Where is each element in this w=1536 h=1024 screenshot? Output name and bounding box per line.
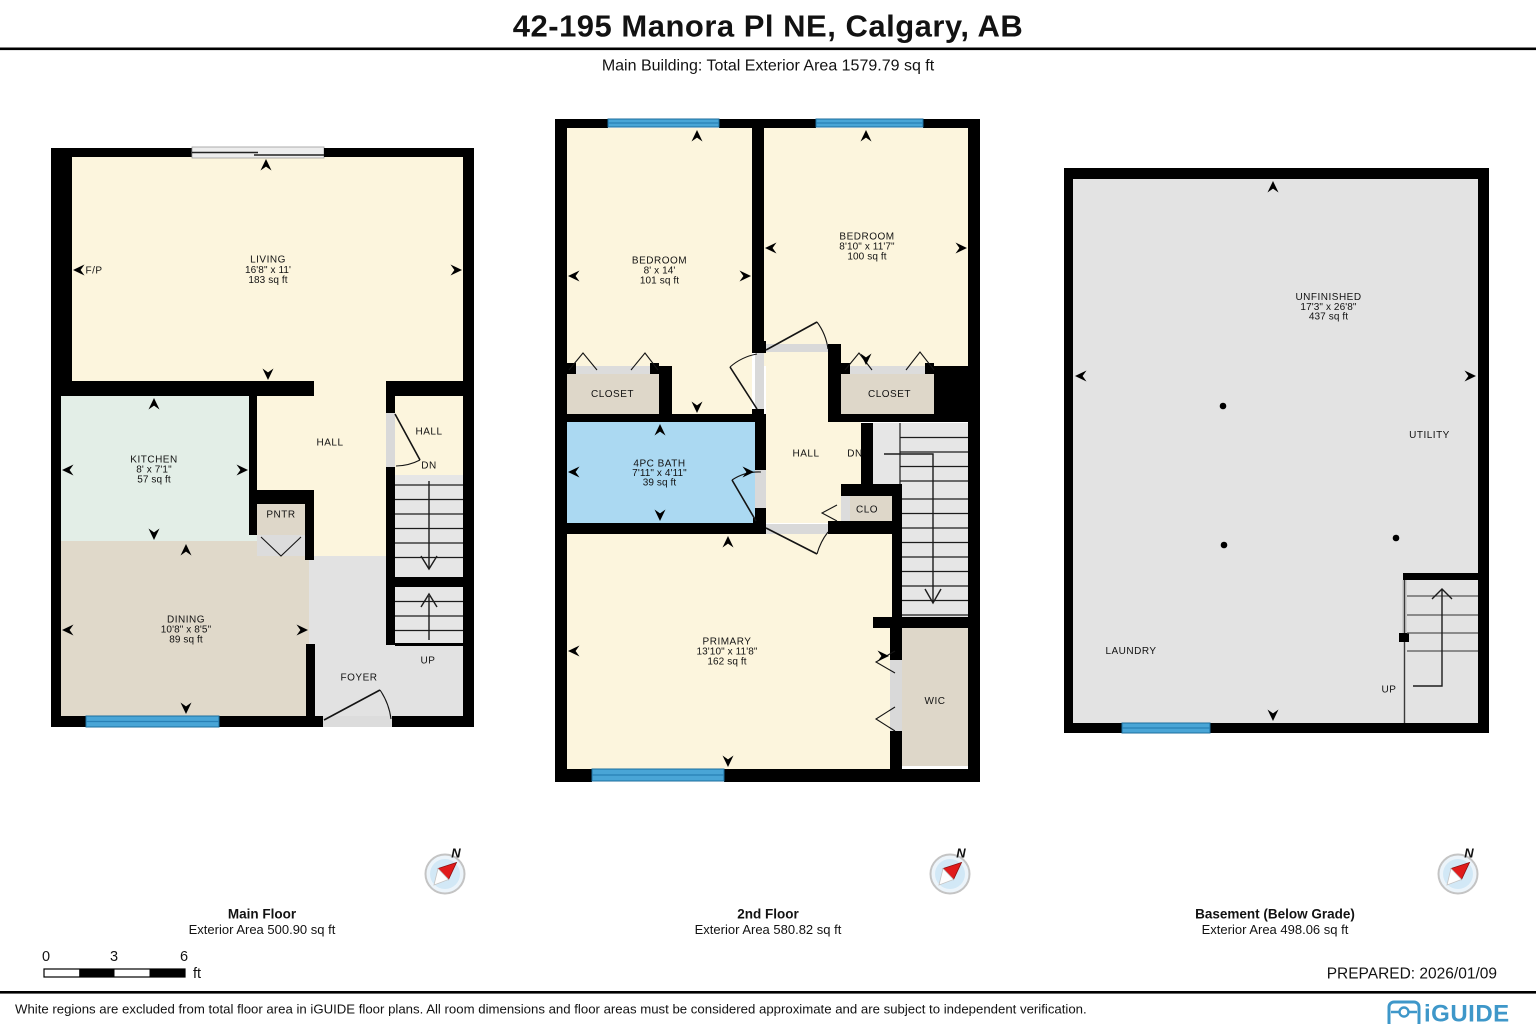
svg-text:DN: DN bbox=[847, 449, 862, 460]
svg-text:183 sq ft: 183 sq ft bbox=[248, 275, 287, 286]
svg-text:100 sq ft: 100 sq ft bbox=[847, 252, 886, 263]
svg-text:HALL: HALL bbox=[792, 449, 819, 460]
svg-text:57 sq ft: 57 sq ft bbox=[137, 475, 171, 486]
svg-text:iGUIDE: iGUIDE bbox=[1424, 1001, 1510, 1024]
svg-text:101 sq ft: 101 sq ft bbox=[640, 276, 679, 287]
svg-text:ft: ft bbox=[193, 966, 201, 982]
svg-text:WIC: WIC bbox=[925, 696, 946, 707]
svg-text:LAUNDRY: LAUNDRY bbox=[1105, 646, 1156, 657]
svg-text:PREPARED: 2026/01/09: PREPARED: 2026/01/09 bbox=[1327, 966, 1497, 983]
svg-text:N: N bbox=[1464, 846, 1474, 861]
svg-text:Exterior Area 580.82 sq ft: Exterior Area 580.82 sq ft bbox=[695, 922, 842, 937]
svg-text:437 sq ft: 437 sq ft bbox=[1309, 312, 1348, 323]
svg-text:Basement (Below Grade): Basement (Below Grade) bbox=[1195, 907, 1355, 922]
svg-text:0: 0 bbox=[42, 949, 50, 965]
svg-text:F/P: F/P bbox=[85, 266, 102, 277]
svg-text:N: N bbox=[956, 846, 966, 861]
svg-text:LIVING: LIVING bbox=[250, 255, 286, 266]
svg-text:Exterior Area 500.90 sq ft: Exterior Area 500.90 sq ft bbox=[189, 922, 336, 937]
svg-text:39 sq ft: 39 sq ft bbox=[643, 478, 677, 489]
svg-text:162 sq ft: 162 sq ft bbox=[707, 657, 746, 668]
svg-text:2nd Floor: 2nd Floor bbox=[737, 907, 799, 922]
svg-text:UP: UP bbox=[421, 656, 436, 667]
svg-text:3: 3 bbox=[110, 949, 118, 965]
svg-text:Main Building: Total Exterior: Main Building: Total Exterior Area 1579.… bbox=[602, 58, 935, 75]
svg-text:89 sq ft: 89 sq ft bbox=[169, 635, 203, 646]
svg-text:White regions are excluded fro: White regions are excluded from total fl… bbox=[15, 1002, 1087, 1017]
svg-text:PNTR: PNTR bbox=[266, 510, 295, 521]
svg-text:42-195 Manora Pl NE, Calgary,: 42-195 Manora Pl NE, Calgary, AB bbox=[513, 9, 1023, 44]
svg-text:UP: UP bbox=[1382, 685, 1397, 696]
svg-text:HALL: HALL bbox=[316, 438, 343, 449]
svg-text:HALL: HALL bbox=[415, 427, 442, 438]
svg-text:N: N bbox=[451, 846, 461, 861]
svg-text:Exterior Area 498.06 sq ft: Exterior Area 498.06 sq ft bbox=[1202, 922, 1349, 937]
svg-text:CLOSET: CLOSET bbox=[868, 389, 911, 400]
svg-text:6: 6 bbox=[180, 949, 188, 965]
svg-text:CLOSET: CLOSET bbox=[591, 389, 634, 400]
svg-text:UTILITY: UTILITY bbox=[1409, 430, 1450, 441]
svg-text:FOYER: FOYER bbox=[341, 673, 378, 684]
svg-text:Main Floor: Main Floor bbox=[228, 907, 297, 922]
svg-text:CLO: CLO bbox=[856, 505, 878, 516]
svg-text:DN: DN bbox=[421, 461, 436, 472]
